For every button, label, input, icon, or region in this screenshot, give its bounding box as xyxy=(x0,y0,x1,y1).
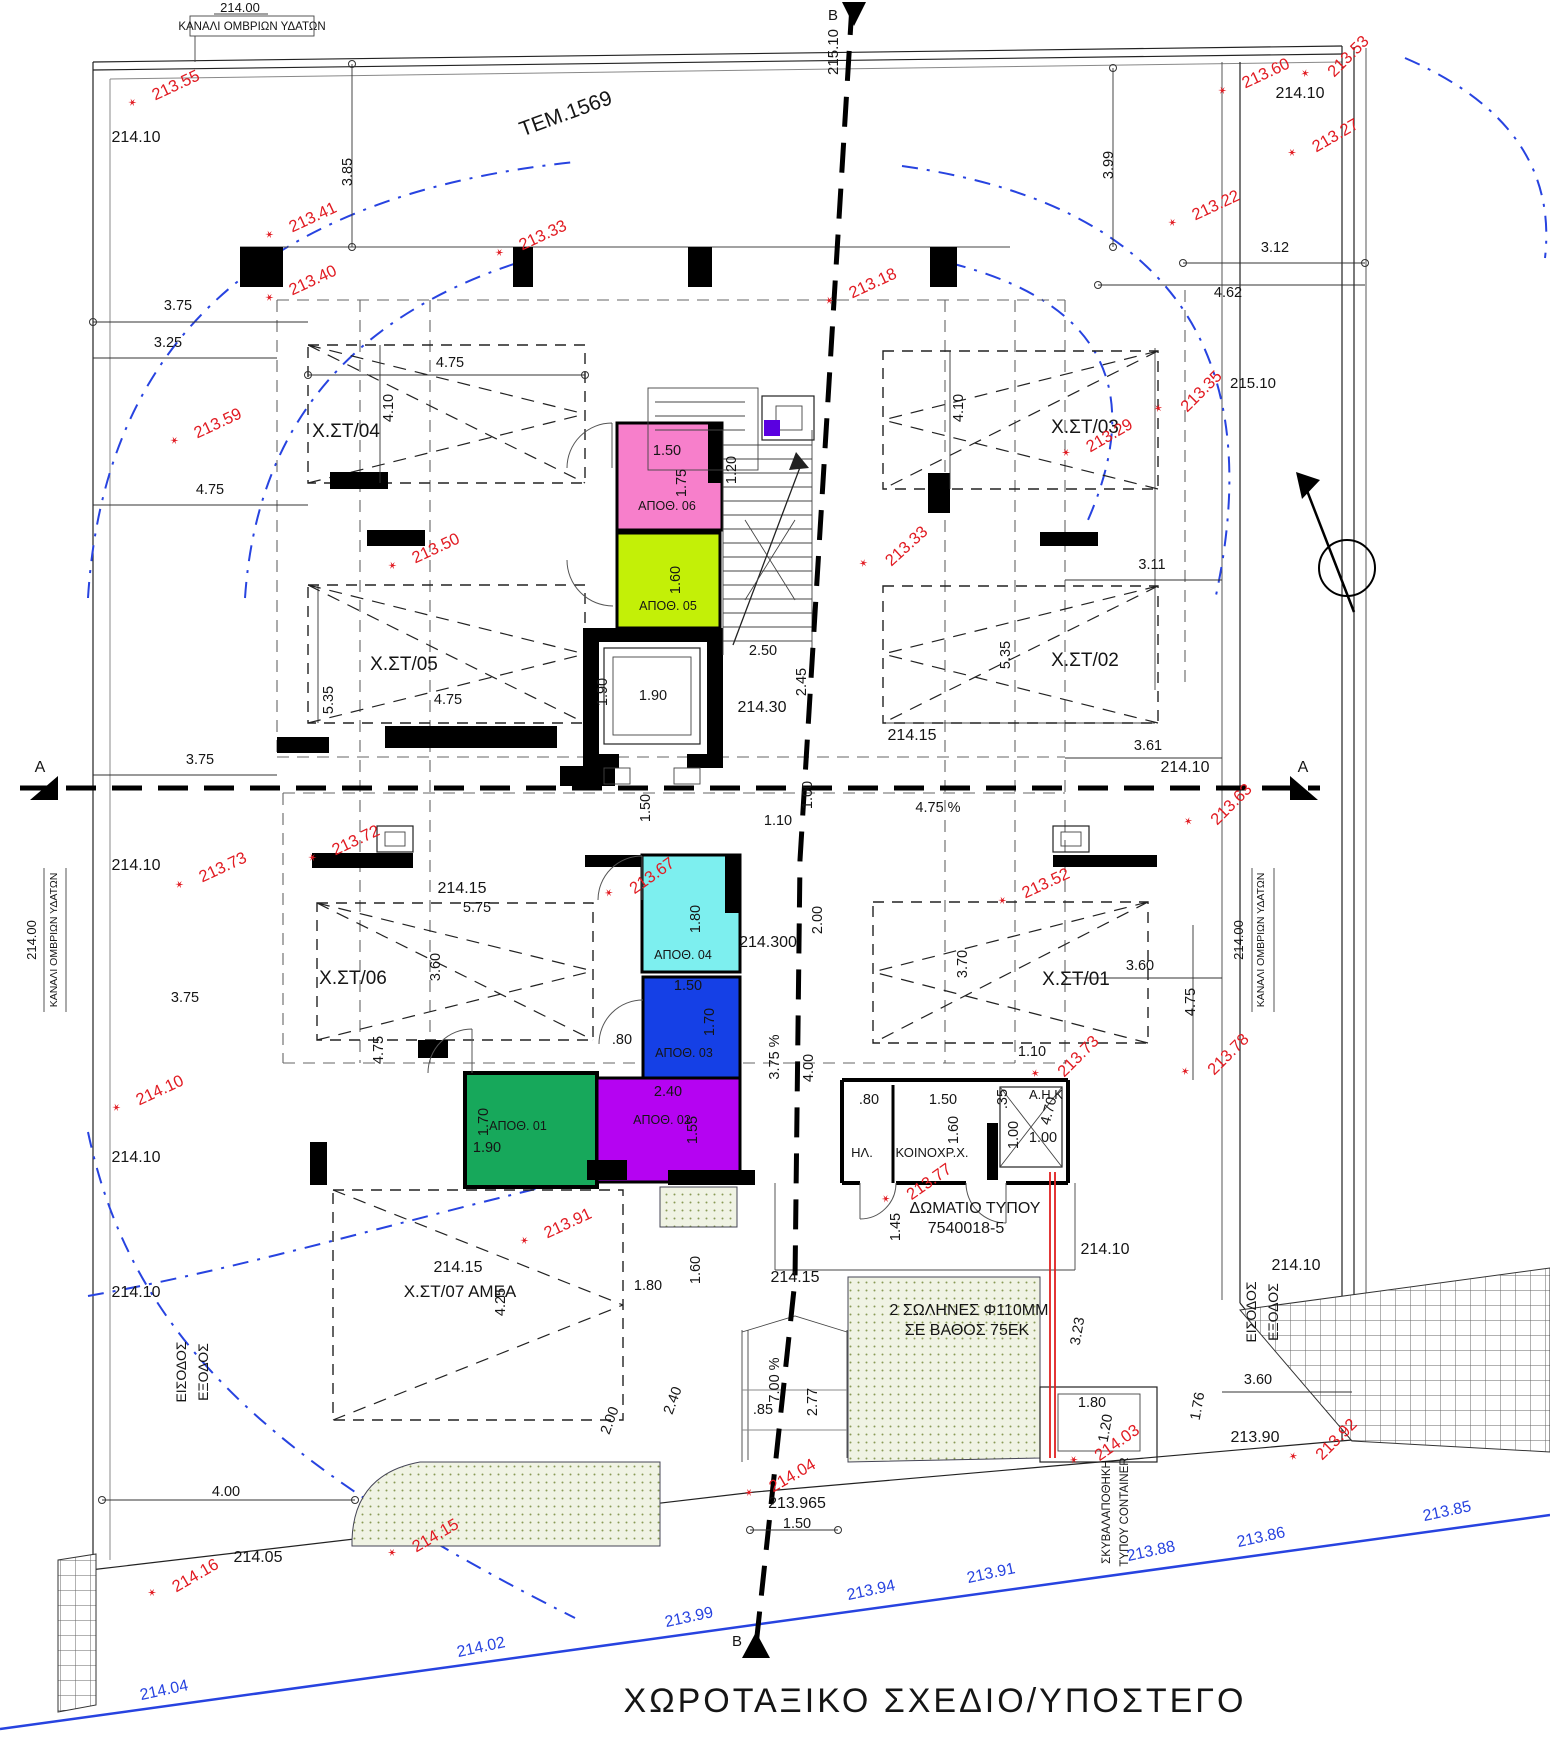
spot-elevation-marker-2: ✶ xyxy=(493,246,506,261)
spot-elevation-marker-9: ✶ xyxy=(1151,401,1166,416)
level-label-14: 214.15 xyxy=(438,880,487,897)
dim-label-41: .80 xyxy=(859,1092,879,1108)
street-elevation-5: 213.88 xyxy=(1125,1538,1177,1565)
spot-elevation-3: 213.18 xyxy=(846,265,899,303)
spot-elevation-8: 213.22 xyxy=(1189,187,1242,225)
dim-label-66: .85 xyxy=(753,1402,773,1418)
dim-label-21: 5.35 xyxy=(998,641,1014,669)
dim-label-28: 5.75 xyxy=(463,900,491,916)
level-label-17: ΚΑΝΑΛΙ ΟΜΒΡΙΩΝ ΥΔΑΤΩΝ xyxy=(48,873,60,1008)
level-label-38: 213.90 xyxy=(1231,1429,1280,1446)
dim-label-65: 7.00 % xyxy=(767,1357,783,1402)
stair-break-cross xyxy=(745,520,795,600)
dim-label-47: 4.75 xyxy=(371,1036,387,1064)
level-label-11: 214.15 xyxy=(888,727,937,744)
level-label-34: ΕΙΣΟΔΟΣ xyxy=(173,1341,189,1402)
spot-elevation-marker-17: ✶ xyxy=(996,894,1009,909)
dim-label-13: 1.60 xyxy=(668,566,684,594)
spot-elevation-marker-10: ✶ xyxy=(168,434,181,449)
dim-label-63: 2.00 xyxy=(598,1405,623,1437)
spot-elevation-marker-28: ✶ xyxy=(743,1486,757,1501)
dim-label-3: 4.62 xyxy=(1214,285,1242,301)
spot-elevation-marker-7: ✶ xyxy=(1286,146,1300,161)
dim-label-14: 2.50 xyxy=(749,643,777,659)
dim-label-32: 3.70 xyxy=(955,950,971,978)
dim-label-5: 3.25 xyxy=(154,335,182,351)
dim-label-11: 1.20 xyxy=(724,456,740,484)
dim-label-46: 1.00 xyxy=(1029,1130,1057,1146)
level-label-16: 214.00 xyxy=(24,920,39,960)
level-label-10: 214.30 xyxy=(738,699,787,716)
level-label-25: 214.15 xyxy=(434,1259,483,1276)
spot-elevation-marker-24: ✶ xyxy=(146,1586,160,1601)
level-label-41: ΣΚΥΒΑΛΑΠΟΘΗΚΗ xyxy=(1101,1460,1113,1564)
level-label-40: 213.965 xyxy=(768,1495,826,1512)
level-label-3: ΤΕΜ.1569 xyxy=(516,87,615,142)
neighbour-hatch-southeast xyxy=(1240,1268,1550,1452)
dim-label-44: 1.60 xyxy=(946,1116,962,1144)
red-pipe-lines xyxy=(1050,1172,1055,1458)
dim-label-49: 1.90 xyxy=(473,1140,501,1156)
spot-elevation-marker-22: ✶ xyxy=(110,1101,123,1116)
dim-label-2: 3.12 xyxy=(1261,240,1289,256)
storage-label-0: ΑΠΟΘ. 06 xyxy=(638,499,696,513)
level-label-1: ΚΑΝΑΛΙ ΟΜΒΡΙΩΝ ΥΔΑΤΩΝ xyxy=(178,21,325,33)
dim-label-67: 2.77 xyxy=(805,1388,821,1416)
parking-label-2: Χ.ΣΤ/05 xyxy=(370,654,438,675)
dim-label-31: 3.60 xyxy=(428,953,444,981)
dim-label-29: 1.80 xyxy=(688,905,704,933)
dim-label-37: 3.75 % xyxy=(767,1034,783,1079)
spot-elevation-21: 213.78 xyxy=(1204,1030,1252,1078)
dim-label-42: 1.50 xyxy=(929,1092,957,1108)
level-label-2: 214.10 xyxy=(112,129,161,146)
dim-label-58: 3.23 xyxy=(1068,1316,1089,1347)
dim-label-33: 4.75 xyxy=(1183,988,1199,1016)
dim-label-7: 4.10 xyxy=(381,394,397,422)
level-label-23: ΔΩΜΑΤΙΟ ΤΥΠΟΥ xyxy=(910,1200,1041,1217)
arc-far-east xyxy=(1405,58,1546,258)
storage-label-5: ΑΠΟΘ. 02 xyxy=(633,1113,691,1127)
spot-elevation-13: 213.33 xyxy=(882,523,932,570)
dim-label-6: 4.75 xyxy=(436,355,464,371)
storage-rooms xyxy=(465,423,740,1187)
level-label-0: 214.00 xyxy=(220,0,260,15)
spot-elevation-marker-11: ✶ xyxy=(1060,446,1074,461)
level-label-31: 214.10 xyxy=(1272,1257,1321,1274)
north-arrow xyxy=(1296,472,1375,612)
dim-label-54: 3.75 xyxy=(171,990,199,1006)
dim-label-12: 4.75 xyxy=(196,482,224,498)
level-label-28: 214.10 xyxy=(112,1149,161,1166)
dim-label-56: 1.80 xyxy=(634,1278,662,1294)
parking-label-5: Χ.ΣΤ/01 xyxy=(1042,969,1110,990)
spot-elevation-marker-5: ✶ xyxy=(1216,84,1229,99)
spot-elevation-17: 213.52 xyxy=(1019,865,1072,903)
storage-label-4: ΑΠΟΘ. 01 xyxy=(489,1119,547,1133)
level-label-21: ΚΟΙΝΟΧΡ.Χ. xyxy=(895,1145,968,1160)
level-label-32: 2 ΣΩΛΗΝΕΣ Φ110ΜΜ xyxy=(890,1302,1049,1319)
level-label-24: 7540018-5 xyxy=(928,1220,1005,1237)
spot-elevation-marker-18: ✶ xyxy=(1181,814,1196,829)
storage-ap06 xyxy=(617,423,722,530)
street-elevation-2: 213.99 xyxy=(663,1604,715,1631)
spot-elevation-marker-13: ✶ xyxy=(857,556,872,571)
street-elevation-1: 214.02 xyxy=(455,1634,507,1661)
level-label-29: 214.10 xyxy=(112,1284,161,1301)
arc-northeast-inner xyxy=(950,263,1112,520)
dim-label-15: 2.45 xyxy=(794,668,810,696)
level-label-8: Α xyxy=(35,759,46,776)
spot-elevation-marker-8: ✶ xyxy=(1166,216,1179,231)
spot-elevation-marker-12: ✶ xyxy=(386,559,399,574)
dim-label-52: 1.45 xyxy=(888,1213,904,1241)
level-label-36: ΕΙΣΟΔΟΣ xyxy=(1243,1281,1259,1342)
north-road-line-2 xyxy=(93,54,1342,70)
dim-label-8: 4.10 xyxy=(951,394,967,422)
arc-northwest-inner xyxy=(245,262,520,598)
ramp xyxy=(742,1316,847,1462)
spot-elevation-marker-16: ✶ xyxy=(602,886,616,901)
level-label-7: 215.10 xyxy=(1230,375,1276,392)
storage-label-1: ΑΠΟΘ. 05 xyxy=(639,599,697,613)
dim-label-55: 4.25 xyxy=(493,1288,509,1316)
stair-direction-arrow xyxy=(733,462,802,645)
level-label-13: 214.10 xyxy=(1161,759,1210,776)
dim-label-64: 2.40 xyxy=(661,1385,686,1417)
dim-label-38: 4.00 xyxy=(801,1054,817,1082)
level-label-15: 214.300 xyxy=(739,934,797,951)
dim-label-30: 2.00 xyxy=(810,906,826,934)
level-label-4: 215.10 xyxy=(825,29,842,75)
dim-label-23: 1.50 xyxy=(638,794,654,822)
level-label-20: ΗΛ. xyxy=(851,1145,873,1160)
section-b-arrow-top xyxy=(842,2,866,26)
spot-elevation-marker-6: ✶ xyxy=(1298,66,1313,81)
dim-label-26: 4.75 % xyxy=(915,800,960,816)
dim-label-22: 3.75 xyxy=(186,752,214,768)
storage-label-2: ΑΠΟΘ. 04 xyxy=(654,948,712,962)
column-marker xyxy=(764,420,780,436)
street-elevation-7: 213.85 xyxy=(1421,1498,1473,1525)
dim-label-19: 1.90 xyxy=(595,678,611,706)
dim-label-20: 1.90 xyxy=(639,688,667,704)
level-label-19: ΚΑΝΑΛΙ ΟΜΒΡΙΩΝ ΥΔΑΤΩΝ xyxy=(1255,873,1267,1008)
spot-elevation-marker-23: ✶ xyxy=(518,1234,531,1249)
dim-label-9: 1.50 xyxy=(653,443,681,459)
spot-elevation-22: 214.10 xyxy=(133,1072,186,1110)
dim-label-59: 3.60 xyxy=(1244,1372,1272,1388)
spot-elevation-marker-25: ✶ xyxy=(386,1546,400,1561)
dim-label-18: 4.75 xyxy=(434,692,462,708)
storage-label-3: ΑΠΟΘ. 03 xyxy=(655,1046,713,1060)
level-label-33: ΣΕ ΒΑΘΟΣ 75ΕΚ xyxy=(905,1322,1030,1339)
level-label-6: 214.10 xyxy=(1276,85,1325,102)
dim-label-24: 1.10 xyxy=(764,813,792,829)
level-label-18: 214.00 xyxy=(1231,920,1246,960)
planter-strip xyxy=(352,1462,660,1546)
spot-elevation-23: 213.91 xyxy=(541,1205,594,1243)
dim-label-16: 3.11 xyxy=(1138,557,1165,573)
dim-label-43: .35 xyxy=(995,1089,1011,1109)
street-elevation-6: 213.86 xyxy=(1235,1524,1287,1551)
stair-arrow-head xyxy=(789,452,809,470)
spot-elevation-0: 213.55 xyxy=(149,67,202,105)
spot-elevation-10: 213.59 xyxy=(191,405,244,443)
level-label-30: 214.10 xyxy=(1081,1241,1130,1258)
dim-label-60: 1.76 xyxy=(1188,1391,1209,1422)
spot-elevation-labels: 213.55213.41213.33213.18213.40213.60213.… xyxy=(110,32,1373,1601)
dim-label-45: 1.00 xyxy=(1006,1121,1022,1149)
spot-elevation-marker-0: ✶ xyxy=(126,96,139,111)
dim-label-36: .80 xyxy=(612,1032,632,1048)
lobby-outline xyxy=(775,1183,1075,1270)
dim-label-39: 1.10 xyxy=(1018,1044,1046,1060)
section-b-arrow-bottom xyxy=(742,1632,770,1658)
spot-elevation-6: 213.53 xyxy=(1324,32,1372,80)
drawing-title: ΧΩΡΟΤΑΞΙΚΟ ΣΧΕΔΙΟ/ΥΠΟΣΤΕΓΟ xyxy=(624,1682,1247,1720)
dim-label-61: 1.80 xyxy=(1078,1395,1106,1411)
spot-elevation-4: 213.40 xyxy=(286,262,339,300)
spot-elevation-20: 213.73 xyxy=(1054,1032,1102,1080)
north-road-line-3 xyxy=(110,62,1342,79)
level-label-39: 214.05 xyxy=(234,1549,283,1566)
dimension-labels: 3.853.993.124.623.753.254.754.104.101.50… xyxy=(154,151,1289,1532)
dim-label-40: 3.60 xyxy=(1126,958,1154,974)
spot-elevation-marker-4: ✶ xyxy=(263,291,276,306)
dim-label-50: 2.40 xyxy=(654,1084,682,1100)
dim-label-68: 4.00 xyxy=(212,1484,240,1500)
level-label-9: Α xyxy=(1298,759,1309,776)
spot-elevation-24: 214.16 xyxy=(169,1555,222,1596)
street-elevation-3: 213.94 xyxy=(845,1577,897,1604)
dim-label-4: 3.75 xyxy=(164,298,192,314)
spot-elevation-marker-1: ✶ xyxy=(263,228,276,243)
spot-elevation-28: 214.04 xyxy=(766,1455,819,1496)
level-label-35: ΕΞΟΔΟΣ xyxy=(195,1343,211,1401)
level-label-12: 214.10 xyxy=(112,857,161,874)
dim-label-69: 1.50 xyxy=(783,1516,811,1532)
dim-label-0: 3.85 xyxy=(340,158,356,186)
spot-elevation-15: 213.73 xyxy=(196,849,249,887)
dim-label-57: 1.60 xyxy=(688,1256,704,1284)
speckled-areas xyxy=(352,1187,1040,1546)
level-label-5: Β xyxy=(828,7,838,24)
neighbour-hatch-southwest xyxy=(58,1554,96,1712)
container-and-pipes xyxy=(1040,1172,1157,1462)
parking-label-4: Χ.ΣΤ/06 xyxy=(319,968,387,989)
spot-elevation-marker-19: ✶ xyxy=(879,1192,893,1207)
level-label-27: 214.15 xyxy=(771,1269,820,1286)
spot-elevation-1: 213.41 xyxy=(286,199,339,237)
arc-northwest-outer xyxy=(88,162,575,598)
spot-elevation-2: 213.33 xyxy=(516,217,569,255)
dim-label-10: 1.75 xyxy=(674,469,690,497)
dim-label-27: 3.61 xyxy=(1134,738,1162,754)
street-elevation-0: 214.04 xyxy=(138,1677,190,1704)
dim-label-35: 1.70 xyxy=(702,1008,718,1036)
dim-label-34: 1.50 xyxy=(674,978,702,994)
north-road-line-1 xyxy=(93,46,1342,62)
dim-label-25: 1.00 xyxy=(800,781,816,809)
spot-elevation-marker-27: ✶ xyxy=(1286,1449,1301,1464)
site-plan-page: 214.00ΚΑΝΑΛΙ ΟΜΒΡΙΩΝ ΥΔΑΤΩΝ214.10ΤΕΜ.156… xyxy=(0,0,1550,1746)
parking-label-0: Χ.ΣΤ/04 xyxy=(312,421,380,442)
spot-elevation-marker-21: ✶ xyxy=(1178,1064,1193,1079)
parking-label-3: Χ.ΣΤ/02 xyxy=(1051,650,1119,671)
dim-label-1: 3.99 xyxy=(1101,151,1117,179)
street-elevation-4: 213.91 xyxy=(965,1560,1017,1587)
site-plan-drawing: 214.00ΚΑΝΑΛΙ ΟΜΒΡΙΩΝ ΥΔΑΤΩΝ214.10ΤΕΜ.156… xyxy=(0,0,1550,1746)
spot-elevation-marker-26: ✶ xyxy=(1067,1453,1081,1468)
level-label-37: ΕΞΟΔΟΣ xyxy=(1265,1283,1281,1341)
level-label-43: Β xyxy=(732,1633,742,1650)
dim-label-17: 5.35 xyxy=(321,686,337,714)
spot-elevation-marker-15: ✶ xyxy=(173,878,186,893)
